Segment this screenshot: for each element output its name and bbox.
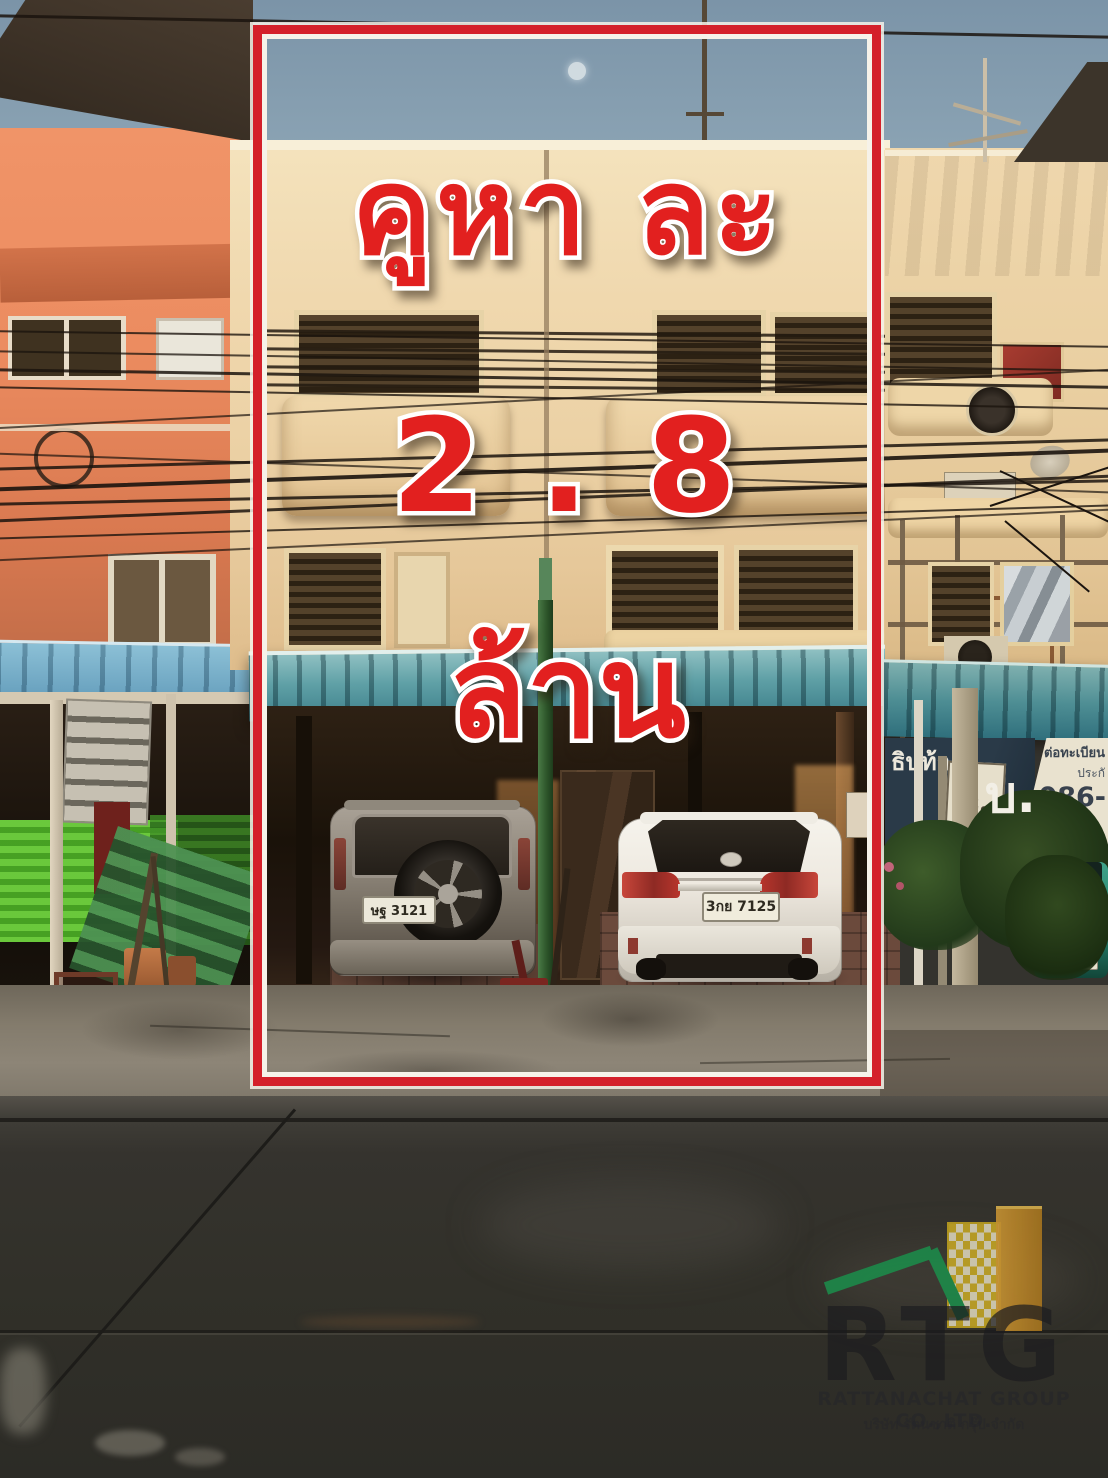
flower-dot-1 xyxy=(884,862,894,872)
plant-3 xyxy=(1005,855,1108,980)
flower-dot-2 xyxy=(896,882,904,890)
road-light-patch xyxy=(0,1348,46,1434)
banner-line-1: ต่อทะเบียน xyxy=(1044,742,1105,763)
photo-canvas: ษฐ 3121 3กย 7125 ธิบท้า ต่อ xyxy=(0,0,1108,1478)
road-speck-2 xyxy=(175,1448,225,1466)
banner-line-2: ประกั xyxy=(1077,764,1105,783)
bicycle-wheel xyxy=(34,428,94,488)
road-speck-1 xyxy=(95,1430,165,1456)
right-parapet-stain xyxy=(885,150,1108,276)
price-text-line-1: คูหา ละ xyxy=(253,150,881,276)
curb-shadow xyxy=(0,1118,1108,1122)
left-awning-orange xyxy=(0,243,257,302)
right-window-2f xyxy=(928,562,994,646)
foil-window xyxy=(1000,562,1074,646)
watermark-company-th: บริษัท รัตนชาติ กรุ๊ป จำกัด xyxy=(780,1414,1108,1436)
road-mottle-1 xyxy=(480,1180,780,1270)
ac-fan xyxy=(966,384,1018,436)
scaffold-horizontal-1 xyxy=(888,560,1108,565)
price-text-line-2: 2 . 8 xyxy=(253,398,881,535)
left-window-2 xyxy=(108,554,216,648)
watermark-logo: RTG RATTANACHAT GROUP CO.,LTD. บริษัท รั… xyxy=(780,1190,1108,1450)
price-text-line-3: ล้าน xyxy=(253,626,881,760)
banner-abbrev: บ. xyxy=(985,756,1036,835)
road-rust-stain xyxy=(300,1316,480,1328)
